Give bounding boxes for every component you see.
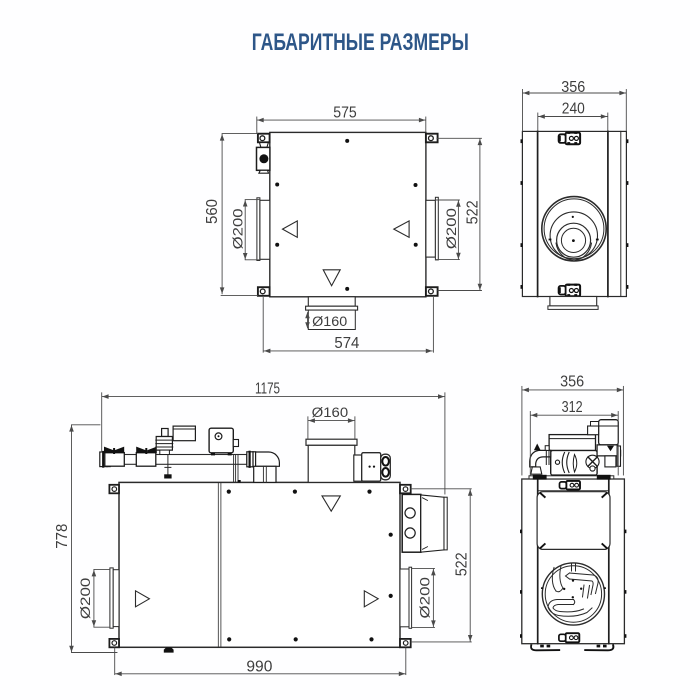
- svg-text:522: 522: [454, 552, 471, 576]
- svg-text:356: 356: [561, 79, 585, 96]
- svg-text:1175: 1175: [255, 381, 280, 398]
- svg-text:312: 312: [562, 399, 583, 416]
- svg-text:522: 522: [465, 200, 482, 224]
- svg-text:778: 778: [54, 524, 71, 549]
- svg-text:Ø200: Ø200: [444, 208, 460, 249]
- svg-text:ГАБАРИТНЫЕ РАЗМЕРЫ: ГАБАРИТНЫЕ РАЗМЕРЫ: [252, 29, 469, 56]
- svg-text:Ø200: Ø200: [231, 208, 247, 249]
- svg-text:560: 560: [204, 199, 221, 224]
- svg-text:Ø200: Ø200: [78, 578, 94, 620]
- svg-text:Ø200: Ø200: [418, 577, 434, 619]
- svg-text:240: 240: [562, 101, 585, 118]
- svg-text:990: 990: [246, 658, 272, 675]
- svg-text:Ø160: Ø160: [312, 314, 347, 330]
- svg-text:Ø160: Ø160: [312, 405, 349, 421]
- svg-text:356: 356: [560, 374, 584, 391]
- svg-text:575: 575: [333, 104, 357, 121]
- svg-text:574: 574: [334, 335, 359, 352]
